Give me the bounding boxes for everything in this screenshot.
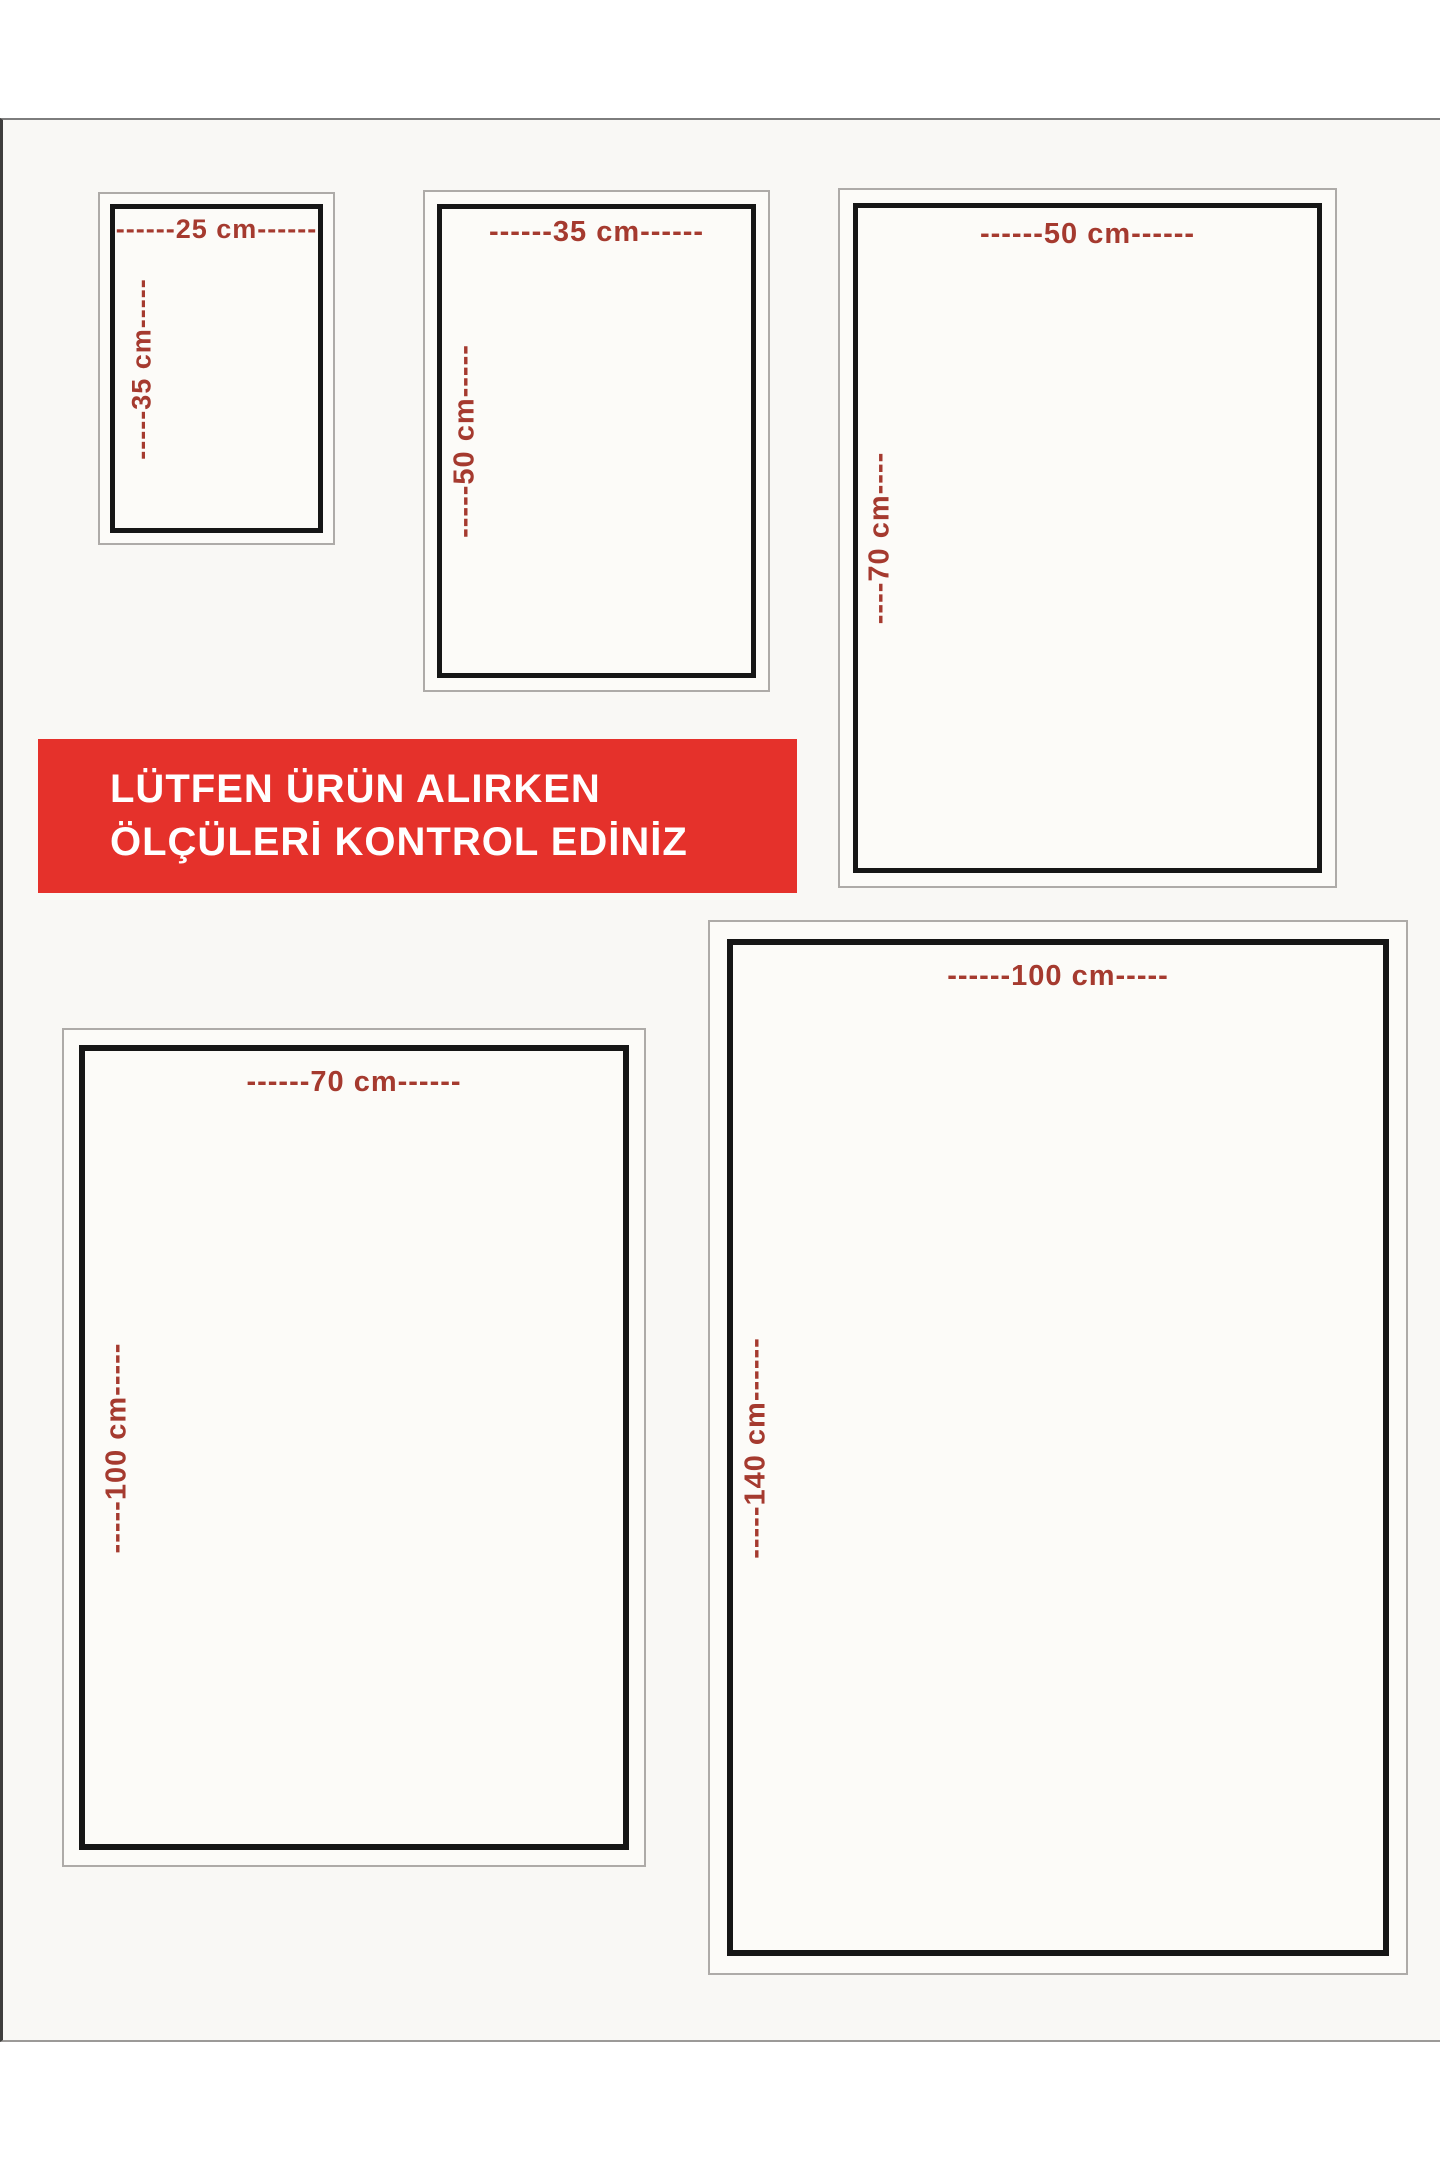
size-box-70x100-frame: [79, 1045, 629, 1850]
size-box-100x140-frame: [727, 939, 1389, 1956]
width-dimension-label: ------100 cm-----: [710, 962, 1406, 991]
warning-banner-line2: ÖLÇÜLERİ KONTROL EDİNİZ: [110, 816, 797, 869]
width-dimension-label: ------35 cm------: [425, 218, 768, 247]
width-dimension-label: ------25 cm------: [100, 216, 333, 243]
size-box-50x70: ------50 cm------ ----70 cm----: [838, 188, 1337, 888]
height-dimension-label: ----70 cm----: [866, 452, 895, 625]
width-dimension-label: ------70 cm------: [64, 1068, 644, 1097]
size-box-50x70-frame: [853, 203, 1322, 873]
size-chart-image: ------25 cm------ -----35 cm----- ------…: [0, 0, 1440, 2160]
width-dimension-label: ------50 cm------: [840, 220, 1335, 249]
warning-banner: LÜTFEN ÜRÜN ALIRKEN ÖLÇÜLERİ KONTROL EDİ…: [38, 739, 797, 893]
size-box-100x140: ------100 cm----- -----140 cm------: [708, 920, 1408, 1975]
height-dimension-label: -----100 cm-----: [103, 1342, 132, 1553]
size-box-70x100: ------70 cm------ -----100 cm-----: [62, 1028, 646, 1867]
warning-banner-line1: LÜTFEN ÜRÜN ALIRKEN: [110, 763, 797, 816]
size-box-25x35: ------25 cm------ -----35 cm-----: [98, 192, 335, 545]
height-dimension-label: -----140 cm------: [742, 1337, 771, 1559]
size-box-35x50: ------35 cm------ -----50 cm-----: [423, 190, 770, 692]
height-dimension-label: -----35 cm-----: [129, 278, 156, 459]
size-box-35x50-frame: [437, 204, 756, 678]
height-dimension-label: -----50 cm-----: [451, 344, 480, 538]
